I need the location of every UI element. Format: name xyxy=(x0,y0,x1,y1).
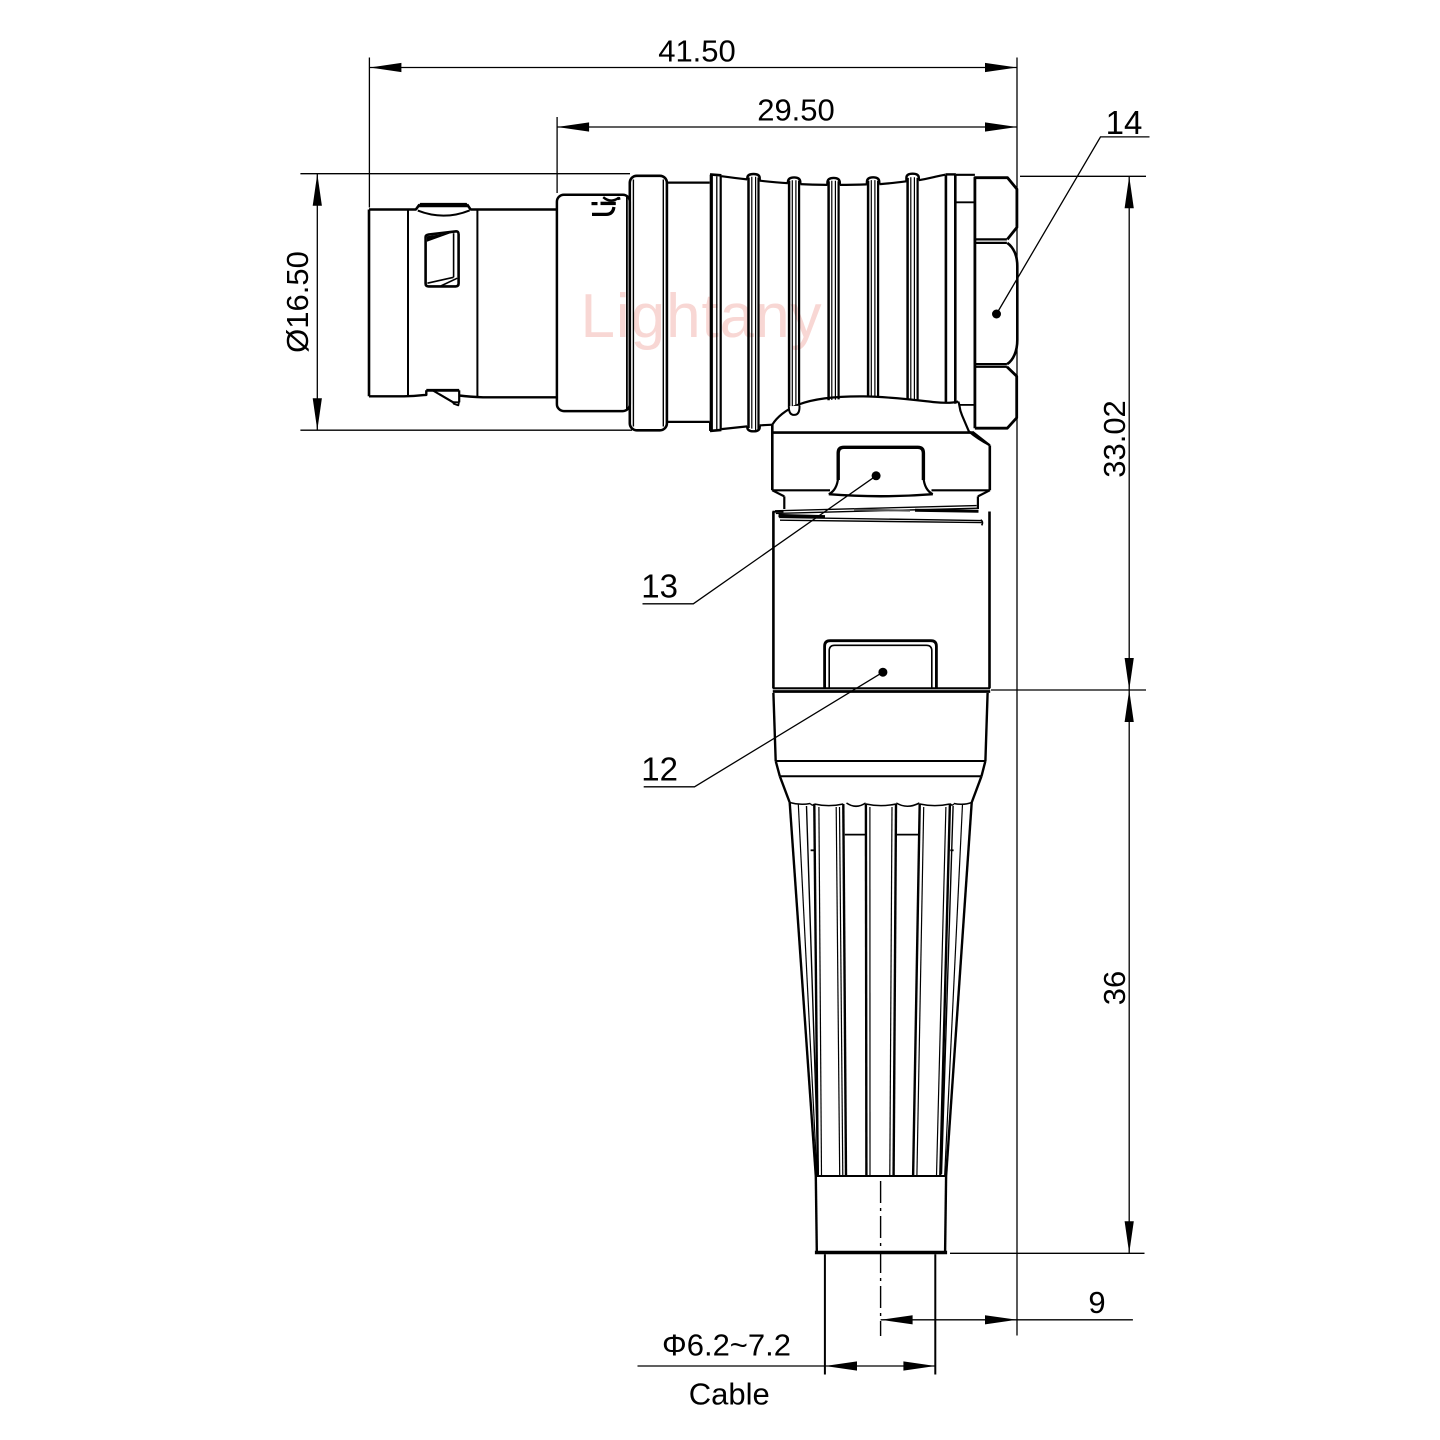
svg-text:9: 9 xyxy=(1088,1285,1105,1320)
svg-text:Lightany: Lightany xyxy=(581,282,822,351)
svg-text:Cable: Cable xyxy=(689,1377,770,1412)
svg-text:14: 14 xyxy=(1106,104,1143,141)
svg-text:29.50: 29.50 xyxy=(757,93,835,128)
svg-text:Ø16.50: Ø16.50 xyxy=(280,251,315,353)
svg-text:13: 13 xyxy=(641,568,678,605)
svg-text:33.02: 33.02 xyxy=(1097,400,1132,478)
svg-text:Φ6.2~7.2: Φ6.2~7.2 xyxy=(662,1328,791,1363)
svg-text:12: 12 xyxy=(641,751,678,788)
svg-text:36: 36 xyxy=(1097,971,1132,1005)
svg-text:41.50: 41.50 xyxy=(658,34,736,69)
